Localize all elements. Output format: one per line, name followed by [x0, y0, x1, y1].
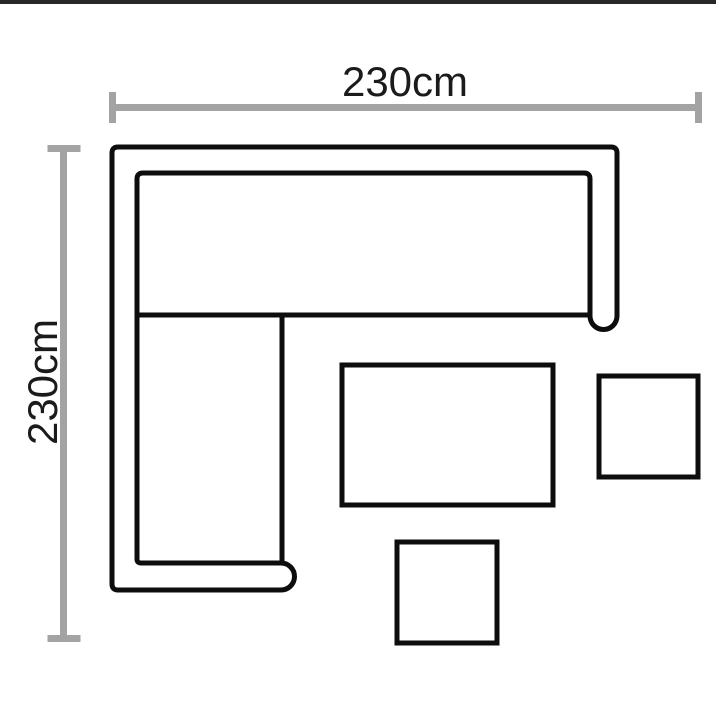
side-table: [599, 376, 698, 477]
width-dimension: 230cm: [113, 58, 699, 123]
height-dimension: 230cm: [19, 149, 81, 639]
corner-sofa-dimension-diagram: 230cm 230cm: [0, 0, 716, 720]
footstool: [397, 542, 497, 643]
height-dimension-label: 230cm: [19, 319, 66, 445]
coffee-table: [342, 365, 553, 505]
width-dimension-label: 230cm: [342, 58, 468, 105]
top-border-line: [0, 0, 716, 4]
dimension-diagram-page: 230cm 230cm: [0, 0, 716, 720]
